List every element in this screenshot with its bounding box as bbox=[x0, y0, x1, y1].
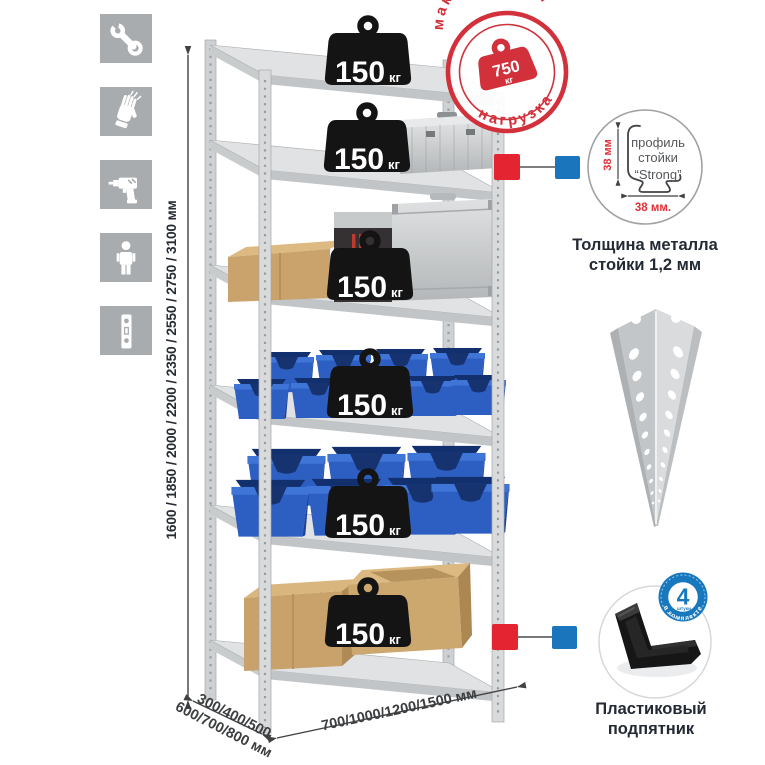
height-dimension-label: 1600 / 1850 / 2000 / 2200 / 2350 / 2550 … bbox=[164, 200, 179, 539]
profile-caption-line1: Толщина металла bbox=[572, 236, 718, 254]
profile-label-2: стойки bbox=[638, 150, 678, 165]
shelf-load-badge bbox=[325, 19, 411, 90]
profile-horizontal-dim: 38 мм. bbox=[635, 202, 671, 214]
width-dimension-label: 700/1000/1200/1500 мм bbox=[320, 686, 478, 735]
shelf-load-badge bbox=[324, 106, 410, 177]
badge-unit: штуки bbox=[677, 606, 691, 611]
marker-red-square bbox=[492, 624, 518, 650]
profile-vertical-dim: 38 мм bbox=[602, 139, 614, 171]
callout-connector-top bbox=[494, 154, 580, 180]
foot-caption-line2: подпятник bbox=[608, 720, 695, 738]
height-dimension: 1600 / 1850 / 2000 / 2200 / 2350 / 2550 … bbox=[164, 46, 191, 709]
marker-blue-square bbox=[555, 156, 580, 179]
profile-label-1: профиль bbox=[631, 135, 685, 150]
foot-caption-line1: Пластиковый bbox=[595, 700, 706, 718]
profile-label-3: “Strong” bbox=[635, 167, 682, 182]
corner-post-image bbox=[610, 309, 702, 527]
marker-blue-square bbox=[552, 626, 577, 649]
callout-connector-bottom bbox=[492, 624, 577, 650]
marker-red-square bbox=[494, 154, 520, 180]
scene: 150 кг bbox=[0, 0, 765, 765]
post-profile-detail: 38 мм 38 мм. профиль стойки “Strong” bbox=[588, 110, 702, 224]
plastic-foot-detail: 4 штуки в комплекте bbox=[599, 573, 711, 699]
product-infographic: 150 кг bbox=[0, 0, 765, 765]
profile-caption-line2: стойки 1,2 мм bbox=[589, 256, 701, 274]
